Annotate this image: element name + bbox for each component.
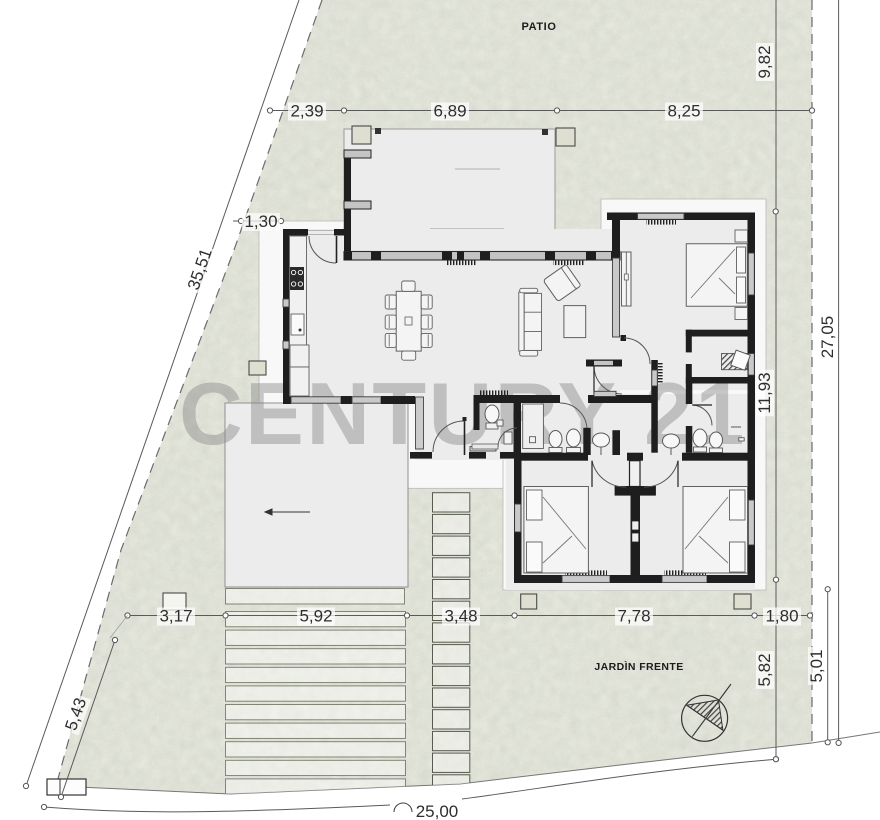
svg-text:1,30: 1,30 bbox=[244, 212, 277, 231]
svg-text:35,51: 35,51 bbox=[184, 246, 216, 292]
svg-text:3,17: 3,17 bbox=[159, 607, 192, 626]
svg-text:5,82: 5,82 bbox=[755, 653, 774, 686]
svg-text:PATIO: PATIO bbox=[522, 21, 557, 33]
svg-text:27,05: 27,05 bbox=[818, 316, 837, 359]
svg-text:5,01: 5,01 bbox=[807, 649, 826, 682]
svg-text:6,89: 6,89 bbox=[433, 102, 466, 121]
svg-text:1,80: 1,80 bbox=[765, 607, 798, 626]
svg-text:7,78: 7,78 bbox=[617, 607, 650, 626]
svg-text:11,93: 11,93 bbox=[755, 372, 774, 413]
svg-text:5,92: 5,92 bbox=[299, 607, 332, 626]
svg-text:8,25: 8,25 bbox=[667, 102, 700, 121]
svg-text:3,48: 3,48 bbox=[444, 607, 477, 626]
svg-text:25,00: 25,00 bbox=[416, 802, 459, 820]
svg-text:2,39: 2,39 bbox=[290, 102, 323, 121]
svg-text:JARDÌN FRENTE: JARDÌN FRENTE bbox=[594, 660, 683, 673]
svg-text:9,82: 9,82 bbox=[755, 45, 774, 78]
